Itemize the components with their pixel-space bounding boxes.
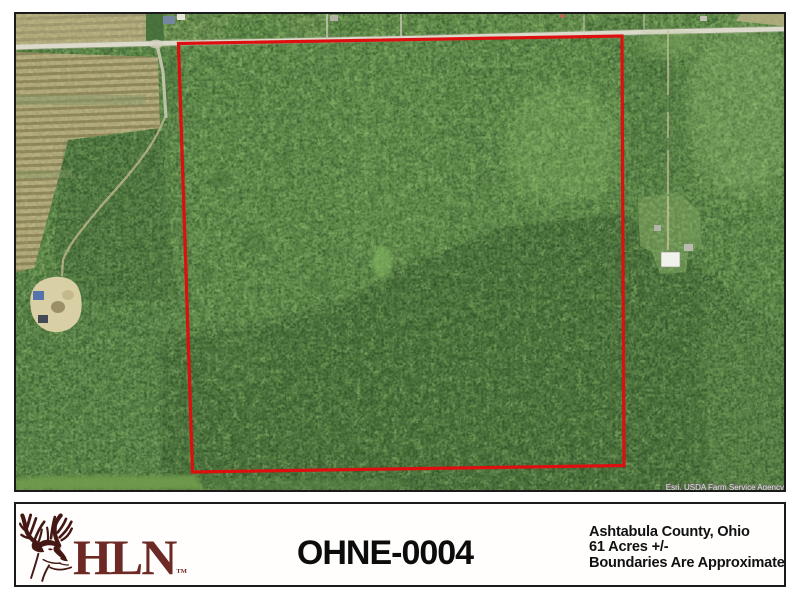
svg-text:Esri, USDA Farm Service Agency: Esri, USDA Farm Service Agency	[666, 483, 784, 490]
